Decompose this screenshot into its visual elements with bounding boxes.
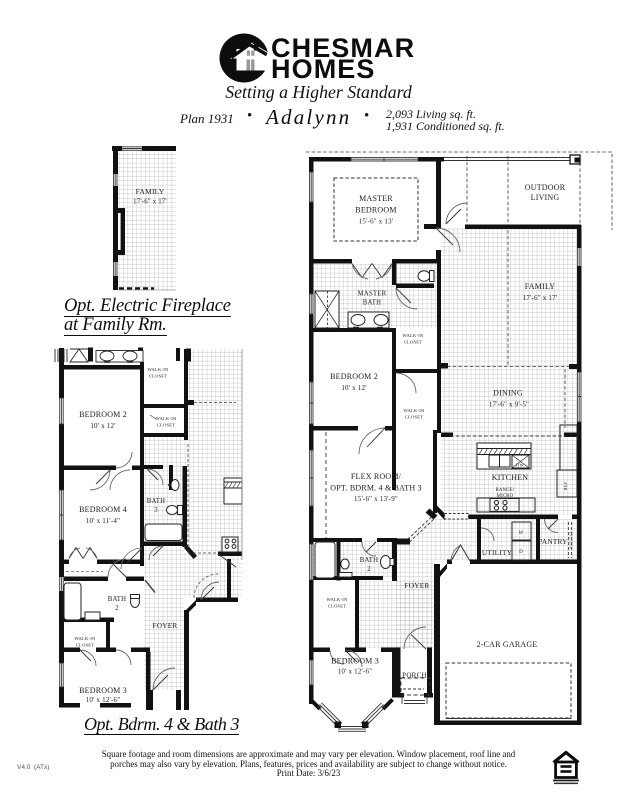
svg-text:FLEX ROOM/: FLEX ROOM/	[351, 472, 402, 481]
svg-text:BATH: BATH	[360, 557, 379, 564]
svg-text:DINING: DINING	[493, 389, 523, 398]
svg-text:CLOSET: CLOSET	[405, 415, 424, 420]
svg-text:WALK-IN: WALK-IN	[402, 333, 424, 338]
svg-text:CLOSET: CLOSET	[149, 374, 168, 379]
svg-text:RANGE/: RANGE/	[495, 488, 515, 493]
svg-text:WALK-IN: WALK-IN	[147, 367, 169, 372]
svg-text:BATH: BATH	[363, 300, 382, 307]
svg-text:MICRO: MICRO	[497, 494, 514, 499]
svg-text:15'-6" x 13'-9": 15'-6" x 13'-9"	[354, 495, 398, 503]
svg-text:BATH: BATH	[147, 498, 166, 505]
svg-text:10' x 11'-4": 10' x 11'-4"	[86, 517, 120, 525]
svg-text:3: 3	[154, 507, 158, 514]
svg-text:CLOSET: CLOSET	[157, 423, 176, 428]
svg-text:BEDROOM 3: BEDROOM 3	[331, 657, 379, 666]
svg-text:2-CAR GARAGE: 2-CAR GARAGE	[477, 640, 538, 649]
svg-text:WALK-IN: WALK-IN	[155, 416, 177, 421]
svg-text:BEDROOM 3: BEDROOM 3	[79, 686, 127, 695]
svg-text:15'-6" x 13': 15'-6" x 13'	[359, 218, 394, 226]
svg-text:17'-6" x 17': 17'-6" x 17'	[133, 199, 167, 206]
svg-text:FAMILY: FAMILY	[136, 187, 165, 196]
svg-text:10' x 12'-6": 10' x 12'-6"	[86, 696, 121, 704]
svg-text:MASTER: MASTER	[358, 291, 387, 298]
svg-text:FOYER: FOYER	[153, 621, 178, 630]
svg-text:10' x 12'-6": 10' x 12'-6"	[338, 668, 373, 676]
svg-text:BEDROOM 2: BEDROOM 2	[330, 372, 378, 381]
svg-text:FOYER: FOYER	[405, 581, 430, 590]
svg-text:2: 2	[367, 566, 371, 573]
svg-text:10' x 12': 10' x 12'	[341, 384, 366, 392]
svg-text:LIVING: LIVING	[531, 193, 560, 202]
svg-text:WALK-IN: WALK-IN	[74, 636, 96, 641]
svg-text:WALK-IN: WALK-IN	[326, 597, 348, 602]
svg-text:17'-6" x 17': 17'-6" x 17'	[523, 294, 558, 302]
svg-text:BEDROOM: BEDROOM	[355, 206, 396, 215]
svg-text:KITCHEN: KITCHEN	[492, 473, 529, 482]
svg-text:DW: DW	[516, 463, 524, 468]
svg-text:BATH: BATH	[108, 596, 127, 603]
svg-text:CLOSET: CLOSET	[404, 340, 423, 345]
svg-text:PORCH: PORCH	[402, 672, 427, 680]
svg-text:WALK-IN: WALK-IN	[403, 408, 425, 413]
svg-text:BEDROOM 4: BEDROOM 4	[79, 505, 127, 514]
svg-text:CLOSET: CLOSET	[328, 604, 347, 609]
svg-text:MASTER: MASTER	[359, 194, 393, 203]
svg-text:CLOSET: CLOSET	[76, 643, 95, 648]
svg-text:17'-6" x 9'-5": 17'-6" x 9'-5"	[489, 401, 529, 409]
svg-text:UTILITY: UTILITY	[482, 548, 513, 557]
svg-text:PANTRY: PANTRY	[538, 537, 568, 546]
svg-text:2: 2	[115, 605, 119, 612]
svg-text:REF: REF	[563, 481, 568, 490]
svg-text:10' x 12': 10' x 12'	[90, 422, 115, 430]
svg-text:FAMILY: FAMILY	[525, 282, 555, 291]
svg-text:SHELVES: SHELVES	[570, 531, 574, 549]
svg-text:W: W	[519, 531, 524, 536]
svg-text:OPT. BDRM. 4 & BATH 3: OPT. BDRM. 4 & BATH 3	[330, 484, 421, 493]
svg-text:D: D	[519, 550, 523, 555]
svg-text:OUTDOOR: OUTDOOR	[525, 183, 566, 192]
svg-text:BEDROOM 2: BEDROOM 2	[79, 410, 127, 419]
